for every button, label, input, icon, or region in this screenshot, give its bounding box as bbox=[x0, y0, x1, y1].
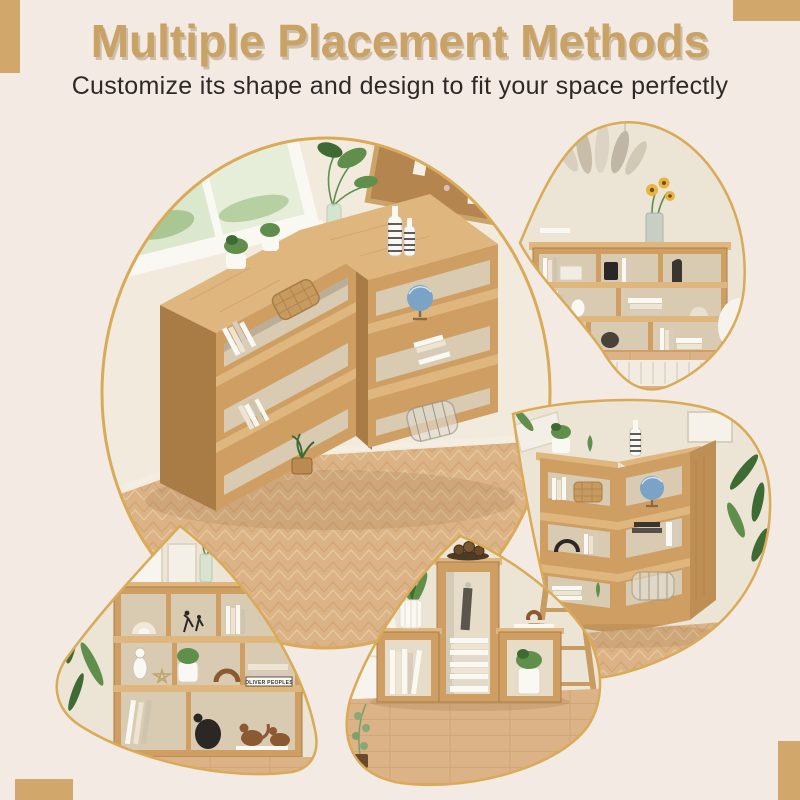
page-subtitle: Customize its shape and design to fit yo… bbox=[0, 72, 800, 101]
photo-collage: OLIVER PEOPLES bbox=[0, 0, 800, 800]
sculpture bbox=[672, 259, 682, 282]
lamp bbox=[195, 719, 221, 749]
book-spine-text: OLIVER PEOPLES bbox=[245, 680, 293, 686]
wire-basket bbox=[632, 572, 674, 600]
picture-frame bbox=[168, 544, 196, 584]
dark-plant bbox=[601, 332, 619, 348]
decor-books-top bbox=[544, 222, 566, 227]
page-title: Multiple Placement Methods bbox=[0, 14, 800, 68]
row-bookcase bbox=[529, 242, 731, 356]
product-infographic: Multiple Placement Methods Customize its… bbox=[0, 0, 800, 800]
header: Multiple Placement Methods Customize its… bbox=[0, 0, 800, 101]
decor-books-top bbox=[540, 228, 570, 233]
